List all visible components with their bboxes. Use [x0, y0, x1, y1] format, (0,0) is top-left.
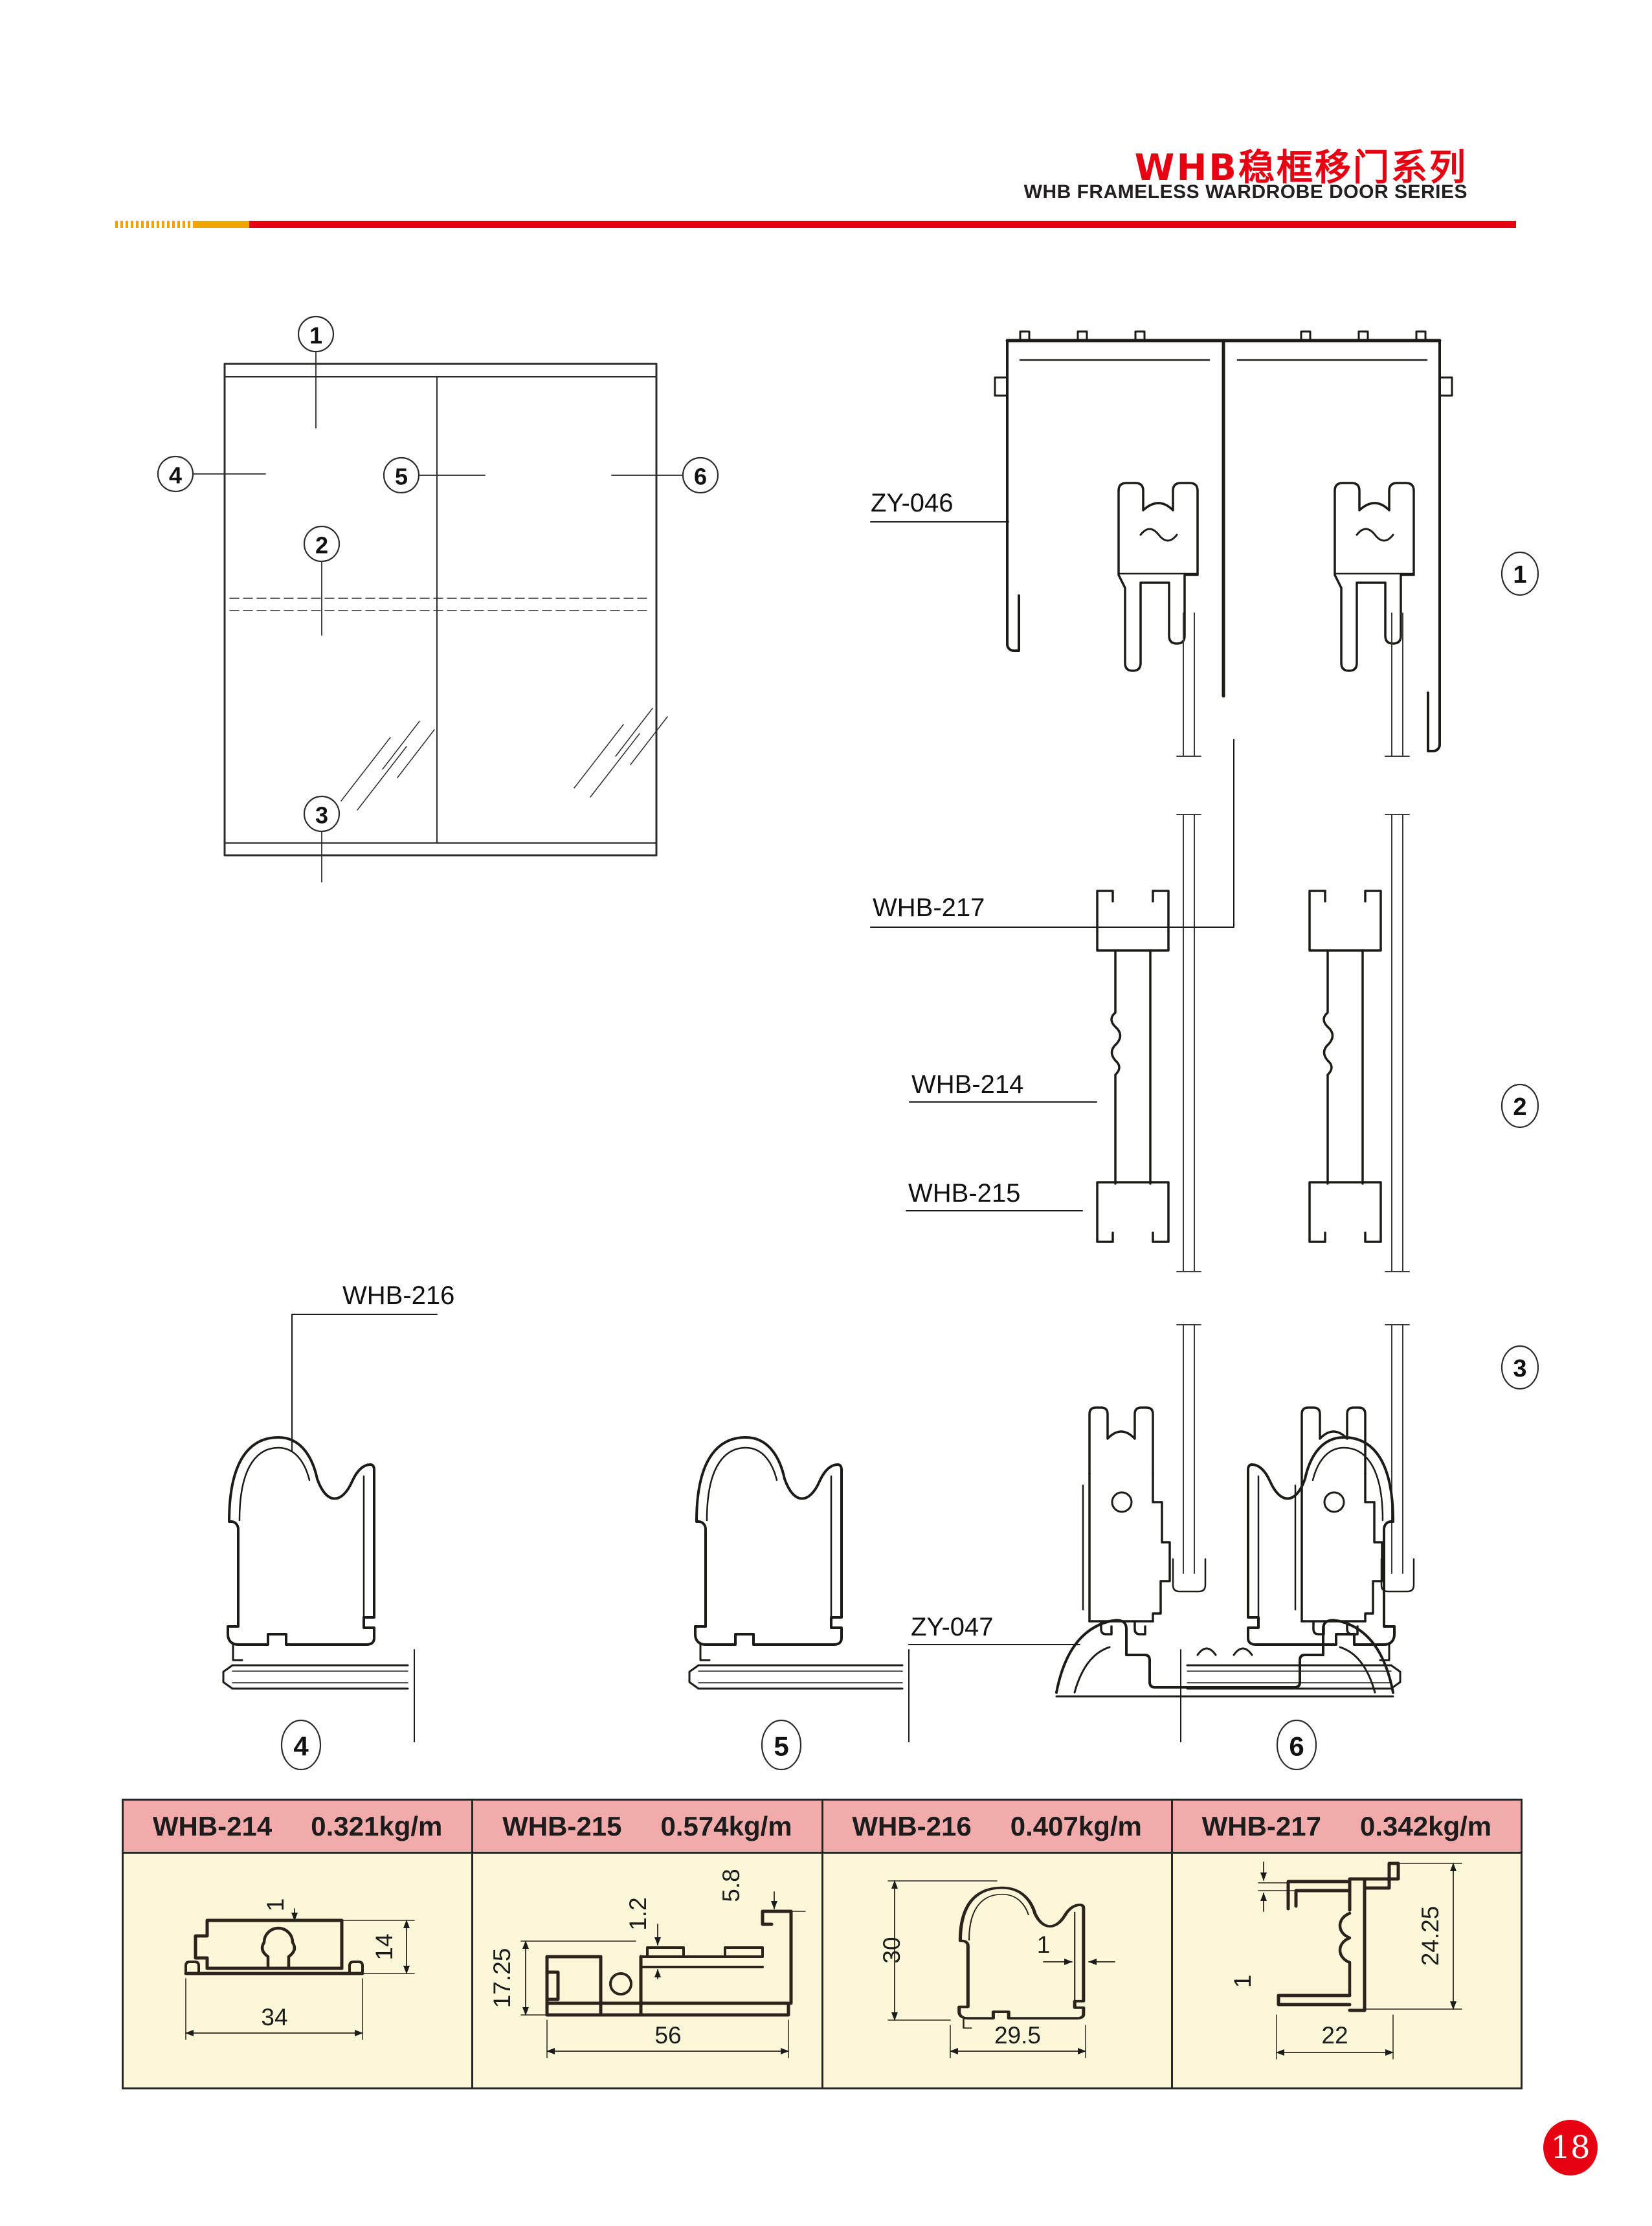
callout-number-3: 3: [315, 802, 328, 829]
callout-number-4: 4: [169, 462, 182, 489]
dimension-label: 34: [261, 2004, 287, 2030]
dimension-label: 5.8: [718, 1869, 744, 1902]
glass-channel-right: [1381, 1559, 1414, 1591]
label-whb214: WHB-214: [911, 1070, 1023, 1099]
callout-number-1: 1: [309, 322, 322, 349]
bottom-rail-whb215-left-drawing: [1083, 1408, 1170, 1634]
technical-drawing-svg: 1 2 3 4 5 6: [0, 0, 1652, 2226]
section-callouts-right: 1 2 3: [1502, 552, 1538, 1389]
hanger-whb217-right-drawing: [1335, 483, 1414, 671]
section-callouts-bottom: 4 5 6: [282, 1720, 1316, 1770]
stile-section4-whb216-drawing: [228, 1437, 374, 1660]
elevation-callouts: 1 2 3 4 5 6: [158, 317, 718, 831]
callout-number-6: 6: [694, 464, 707, 490]
dimension-label: 14: [371, 1933, 397, 1960]
dimension-label: 1.2: [625, 1897, 651, 1930]
glass-hatch-marks: [341, 708, 667, 810]
section-callout-5: 5: [774, 1731, 788, 1762]
bottom-rail-whb215-right-drawing: [1295, 1408, 1382, 1634]
label-leader-lines: [292, 522, 1234, 1645]
dimension-label: 24.25: [1417, 1906, 1444, 1966]
floor-guide-zy047-drawing: [1056, 1621, 1393, 1697]
dimension-label: 56: [654, 2022, 681, 2049]
vertical-section-assembly: [292, 332, 1452, 1696]
page-number-badge: 18: [1543, 2120, 1598, 2175]
hanger-whb217-left-drawing: [1119, 483, 1198, 671]
dimension-label: 1: [262, 1898, 289, 1912]
catalog-page: WHB稳框移门系列 WHB FRAMELESS WARDROBE DOOR SE…: [0, 0, 1652, 2226]
section-callout-2: 2: [1513, 1094, 1526, 1121]
table-drawing-whb214: 1 14 34: [186, 1898, 414, 2040]
glass-panel-lines: [1177, 613, 1409, 1573]
table-drawing-whb217: 1 24.25 22: [1229, 1862, 1462, 2059]
dimension-label: 1: [1037, 1931, 1051, 1958]
table-drawing-whb216: 30 1 29.5: [878, 1881, 1115, 2058]
stile-section5-drawing: [695, 1437, 842, 1660]
table-drawing-whb215: 17.25 1.2 5.8 56: [489, 1869, 805, 2058]
callout-number-5: 5: [395, 464, 408, 490]
section-callout-1: 1: [1513, 561, 1526, 589]
page-number: 18: [1550, 2130, 1590, 2166]
table-profile-drawings: 1 14 34: [186, 1862, 1462, 2059]
label-whb215: WHB-215: [908, 1179, 1020, 1208]
label-whb217: WHB-217: [873, 894, 985, 922]
glass-channel-left: [1173, 1559, 1205, 1591]
dimension-label: 22: [1321, 2022, 1348, 2049]
dimension-label: 1: [1229, 1975, 1256, 1988]
interlock-whb214-right-drawing: [1310, 891, 1381, 1242]
section-callout-4: 4: [293, 1731, 309, 1762]
section-callout-6: 6: [1289, 1731, 1304, 1762]
stile-section6-drawing: [1248, 1437, 1394, 1660]
callout-number-2: 2: [315, 532, 328, 559]
label-zy047: ZY-047: [911, 1613, 994, 1641]
lock-rail-dashed-line: [230, 598, 651, 611]
dimension-label: 30: [878, 1937, 905, 1963]
label-whb216: WHB-216: [342, 1281, 454, 1310]
dimension-label: 17.25: [489, 1948, 515, 2008]
label-zy046: ZY-046: [871, 489, 954, 517]
section-callout-3: 3: [1513, 1355, 1526, 1382]
interlock-whb214-left-drawing: [1097, 891, 1168, 1242]
door-elevation: [193, 352, 683, 882]
dimension-label: 29.5: [994, 2022, 1041, 2049]
